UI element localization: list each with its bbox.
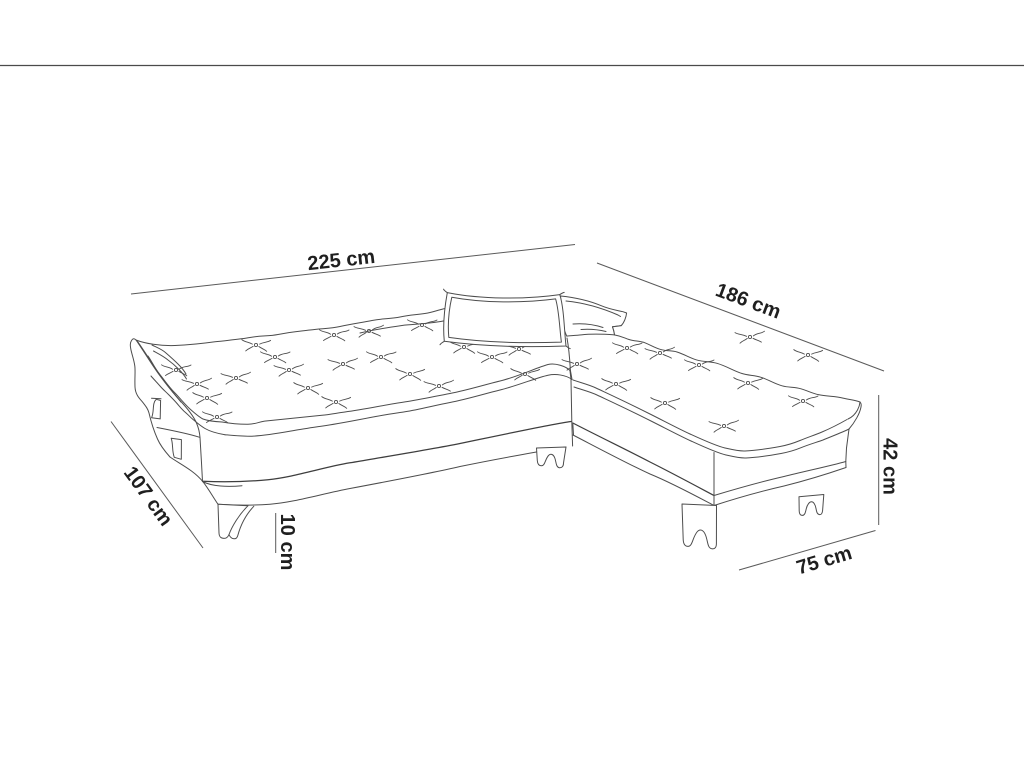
svg-text:42 cm: 42 cm: [879, 438, 901, 495]
svg-text:10 cm: 10 cm: [276, 514, 298, 571]
